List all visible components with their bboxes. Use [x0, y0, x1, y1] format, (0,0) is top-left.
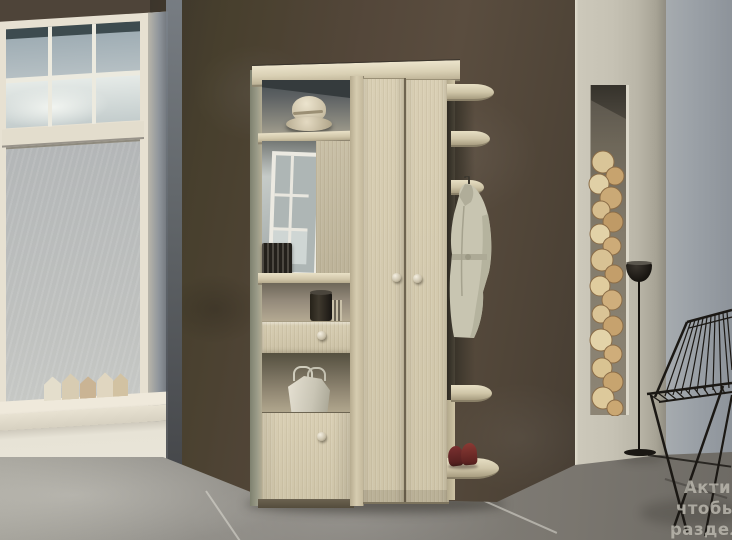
coat-hook: [465, 176, 469, 184]
room-photo: Актив чтобы раздел: [0, 0, 732, 540]
window-frame-side: [148, 11, 168, 432]
window-pane-sky-lower: [6, 74, 140, 128]
cabinet-knob: [317, 432, 326, 441]
canister-lid: [310, 290, 332, 295]
lamp-shade-rim: [626, 261, 652, 265]
wardrobe-door-left: [363, 78, 404, 503]
hanging-coat: [444, 176, 502, 346]
watermark-line: чтобы: [676, 498, 732, 519]
canister: [310, 292, 332, 321]
drawer-knob: [317, 331, 326, 340]
lower-cabinet-door: [262, 412, 352, 503]
corner-shelf: [451, 131, 490, 147]
red-shoe: [460, 442, 477, 465]
wardrobe-door-right: [406, 79, 450, 503]
divider-panel: [350, 76, 364, 506]
niche-ceiling: [591, 85, 626, 119]
lamp-shade: [626, 262, 652, 282]
radio: [262, 243, 292, 276]
hat-brim: [286, 117, 332, 131]
window-frosted-pane: [6, 139, 140, 403]
wardrobe-knob-right: [413, 274, 422, 283]
floor-seam: [205, 490, 240, 540]
firewood-logs: [588, 150, 626, 416]
watermark-line: Актив: [684, 477, 732, 498]
floor-seam: [480, 498, 558, 534]
unit-plinth: [258, 499, 354, 508]
watermark-line: раздел: [670, 519, 732, 540]
drawer: [262, 321, 352, 356]
watermark: Актив чтобы раздел: [670, 477, 732, 540]
window: [0, 11, 168, 484]
wall-corner-strip: [166, 0, 182, 472]
corner-shelf-top: [447, 84, 494, 101]
mirror-side-panel: [316, 141, 350, 278]
small-tin: [332, 300, 342, 321]
wardrobe-knob-left: [392, 273, 401, 282]
lamp-pole: [638, 281, 640, 451]
corner-shelf: [451, 385, 492, 402]
reflection-muntin: [275, 193, 309, 197]
wardrobe-base: [363, 490, 449, 504]
shoe-shadow: [448, 464, 478, 469]
